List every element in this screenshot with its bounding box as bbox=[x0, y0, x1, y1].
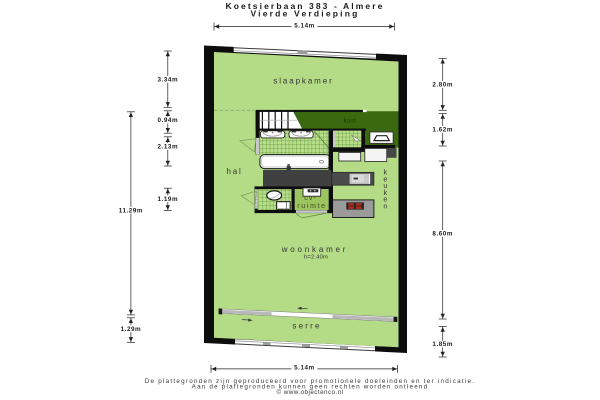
svg-text:kast: kast bbox=[344, 119, 357, 125]
svg-text:© www.objectenco.nl: © www.objectenco.nl bbox=[276, 388, 343, 396]
svg-text:11.29m: 11.29m bbox=[119, 207, 143, 214]
svg-text:n: n bbox=[383, 204, 387, 211]
svg-text:1.29m: 1.29m bbox=[121, 326, 142, 333]
svg-text:serre: serre bbox=[292, 322, 321, 331]
svg-text:0.94m: 0.94m bbox=[157, 117, 178, 124]
svg-text:1.85m: 1.85m bbox=[432, 341, 453, 348]
svg-text:3.34m: 3.34m bbox=[157, 77, 178, 84]
svg-text:slaapkamer: slaapkamer bbox=[273, 77, 333, 86]
svg-text:5.14m: 5.14m bbox=[294, 22, 315, 29]
svg-text:h=2.40m: h=2.40m bbox=[304, 255, 328, 261]
svg-text:ruimte: ruimte bbox=[297, 201, 327, 210]
svg-text:8.60m: 8.60m bbox=[432, 231, 453, 238]
svg-text:Vierde Verdieping: Vierde Verdieping bbox=[250, 9, 359, 19]
svg-text:5.14m: 5.14m bbox=[294, 364, 315, 371]
svg-text:1.19m: 1.19m bbox=[157, 196, 178, 203]
svg-text:hal: hal bbox=[226, 167, 242, 176]
svg-text:woonkamer: woonkamer bbox=[281, 245, 349, 254]
svg-text:2.13m: 2.13m bbox=[157, 144, 178, 151]
svg-text:1.62m: 1.62m bbox=[432, 127, 453, 134]
svg-text:2.80m: 2.80m bbox=[432, 82, 453, 89]
